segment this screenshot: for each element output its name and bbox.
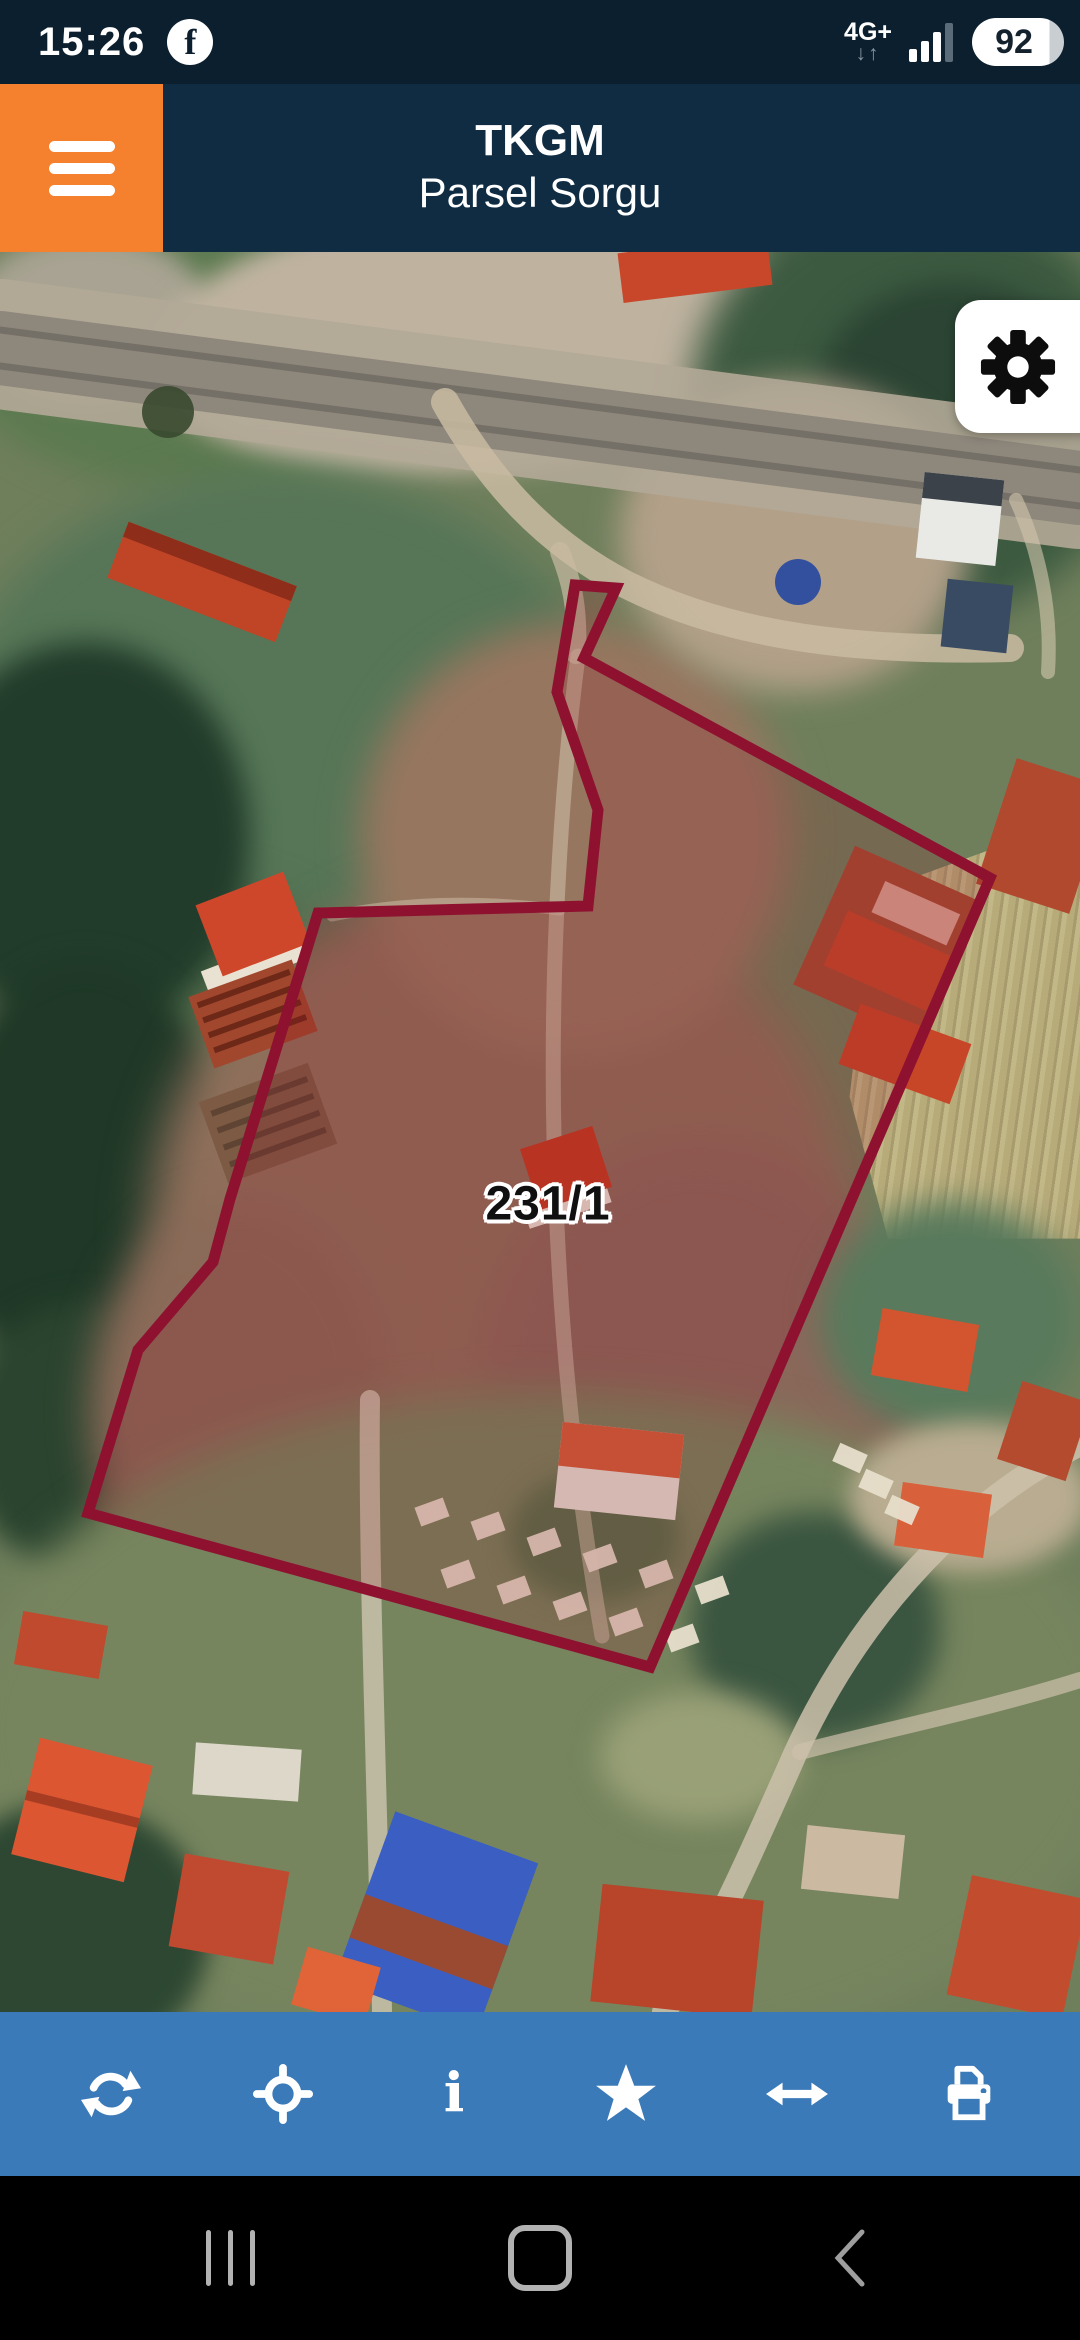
refresh-button[interactable] (51, 2034, 171, 2154)
resize-horizontal-icon (764, 2061, 830, 2127)
refresh-icon (80, 2063, 142, 2125)
recents-button[interactable] (150, 2198, 310, 2318)
hamburger-icon (49, 141, 115, 196)
app-title-line1: TKGM (475, 116, 605, 167)
android-navbar (0, 2176, 1080, 2340)
svg-text:i: i (444, 2063, 465, 2124)
bottom-toolbar: i (0, 2012, 1080, 2176)
print-icon (938, 2063, 1000, 2125)
facebook-notification-icon: f (167, 19, 213, 65)
parcel-label: 231/1 (485, 1177, 610, 1232)
upload-arrow-icon: ↑ (868, 42, 881, 65)
map-overlay (0, 252, 1080, 2012)
app-screen: 15:26 f 4G+ ↓↑ 92 TKGM Parsel Sorgu (0, 0, 1080, 2340)
favorite-button[interactable] (566, 2034, 686, 2154)
locate-icon (252, 2063, 314, 2125)
app-header: TKGM Parsel Sorgu (0, 84, 1080, 252)
download-arrow-icon: ↓ (856, 42, 869, 65)
signal-bars-icon (908, 19, 956, 65)
info-button[interactable]: i (394, 2034, 514, 2154)
network-indicator: 4G+ ↓↑ (844, 20, 892, 64)
menu-button[interactable] (0, 84, 163, 252)
gear-icon (979, 328, 1057, 406)
recents-icon (206, 2230, 255, 2286)
back-button[interactable] (770, 2198, 930, 2318)
back-icon (822, 2226, 878, 2290)
home-icon (508, 2225, 572, 2291)
info-icon: i (423, 2063, 485, 2125)
map-canvas[interactable]: 231/1 (0, 252, 1080, 2012)
settings-button[interactable] (955, 300, 1080, 433)
battery-indicator: 92 (972, 18, 1064, 66)
status-bar: 15:26 f 4G+ ↓↑ 92 (0, 0, 1080, 84)
star-icon (593, 2061, 659, 2127)
print-button[interactable] (909, 2034, 1029, 2154)
measure-button[interactable] (737, 2034, 857, 2154)
home-button[interactable] (460, 2198, 620, 2318)
clock: 15:26 (38, 20, 145, 65)
app-title-line2: Parsel Sorgu (419, 167, 662, 220)
locate-button[interactable] (223, 2034, 343, 2154)
